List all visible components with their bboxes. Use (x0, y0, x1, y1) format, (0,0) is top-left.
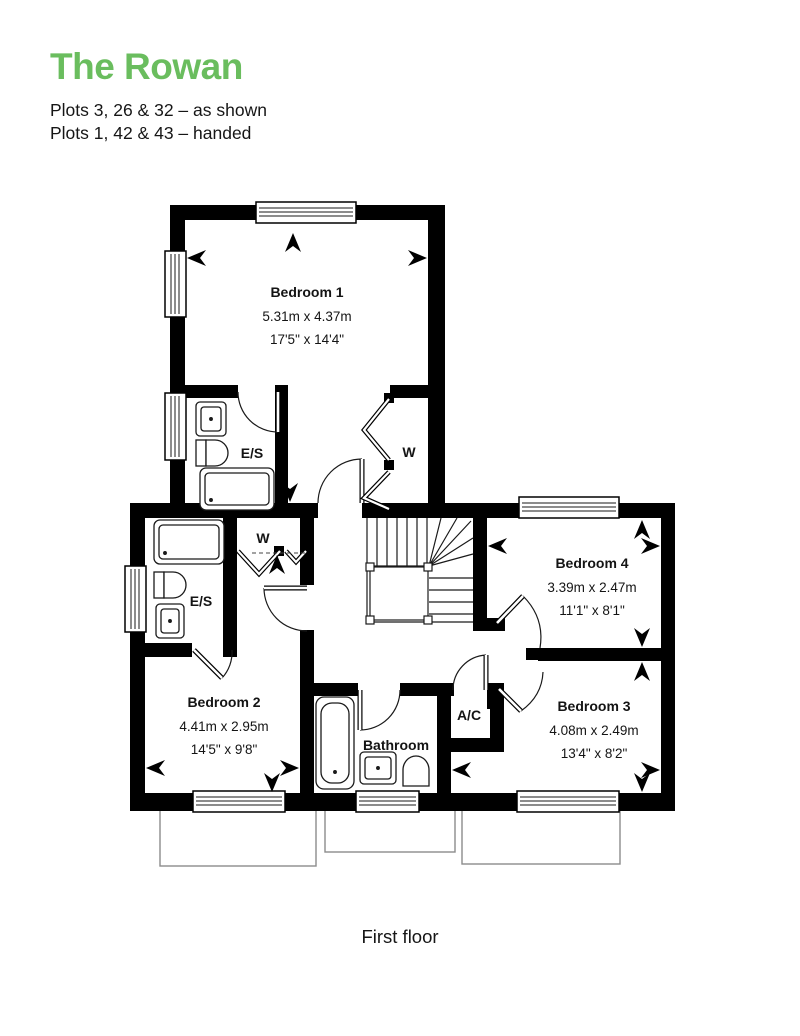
arrow-left (146, 760, 165, 776)
ensuite1-sink (196, 402, 226, 436)
bedroom3-door-arc (521, 672, 543, 711)
arrow-left (488, 538, 507, 554)
arrow-up (285, 233, 301, 252)
airing-cupboard-label: A/C (457, 707, 481, 723)
bedroom2-name: Bedroom 2 (187, 694, 260, 710)
ground-floor-outline (160, 806, 620, 866)
arrow-up (634, 520, 650, 539)
bedroom2-door-arc (264, 588, 307, 631)
bedroom3-metric: 4.08m x 2.49m (549, 723, 638, 738)
arrow-left (452, 762, 471, 778)
arrow-down (634, 628, 650, 647)
ensuite2-sink (156, 604, 184, 638)
bathroom-sink (360, 752, 396, 784)
arrow-right (280, 760, 299, 776)
airing-cupboard-door-arc (453, 655, 486, 690)
ensuite1-shower (200, 468, 274, 510)
bedroom4-name: Bedroom 4 (555, 555, 628, 571)
ensuite1-label: E/S (241, 445, 264, 461)
arrow-down (264, 773, 280, 792)
floor-caption: First floor (0, 926, 800, 948)
wardrobe1-label: W (402, 444, 416, 460)
bedroom2-metric: 4.41m x 2.95m (179, 719, 268, 734)
bedroom1-name: Bedroom 1 (270, 284, 343, 300)
arrow-left (187, 250, 206, 266)
wardrobe1-bifold-doors (364, 399, 389, 509)
ensuite1-toilet (196, 440, 228, 466)
bedroom1-metric: 5.31m x 4.37m (262, 309, 351, 324)
bedroom4-imperial: 11'1" x 8'1" (559, 603, 625, 618)
staircase (366, 518, 473, 624)
arrow-right (641, 538, 660, 554)
wardrobe2-label: W (256, 530, 270, 546)
floor-plan-svg: Bedroom 1 5.31m x 4.37m 17'5" x 14'4" Be… (0, 0, 800, 1036)
bedroom1-door-arc (318, 459, 362, 503)
floorplan-page: The Rowan Plots 3, 26 & 32 – as shown Pl… (0, 0, 800, 1036)
ensuite2-toilet (154, 572, 186, 598)
arrow-right (408, 250, 427, 266)
bedroom3-imperial: 13'4" x 8'2" (561, 746, 628, 761)
bathroom-label: Bathroom (363, 737, 429, 753)
bathroom-bathtub (316, 697, 354, 789)
bedroom2-imperial: 14'5" x 9'8" (191, 742, 258, 757)
bathroom-toilet (403, 756, 429, 786)
arrow-up (634, 662, 650, 681)
bathroom-door-arc (360, 690, 400, 730)
bedroom1-imperial: 17'5" x 14'4" (270, 332, 344, 347)
arrow-right (641, 762, 660, 778)
bedroom3-name: Bedroom 3 (557, 698, 630, 714)
ensuite1-door-arc (238, 392, 278, 432)
doors (194, 392, 543, 730)
bedroom4-metric: 3.39m x 2.47m (547, 580, 636, 595)
ensuite2-label: E/S (190, 593, 213, 609)
ensuite2-shower (154, 520, 224, 564)
bedroom4-door-arc (523, 596, 541, 648)
arrow-down (634, 773, 650, 792)
